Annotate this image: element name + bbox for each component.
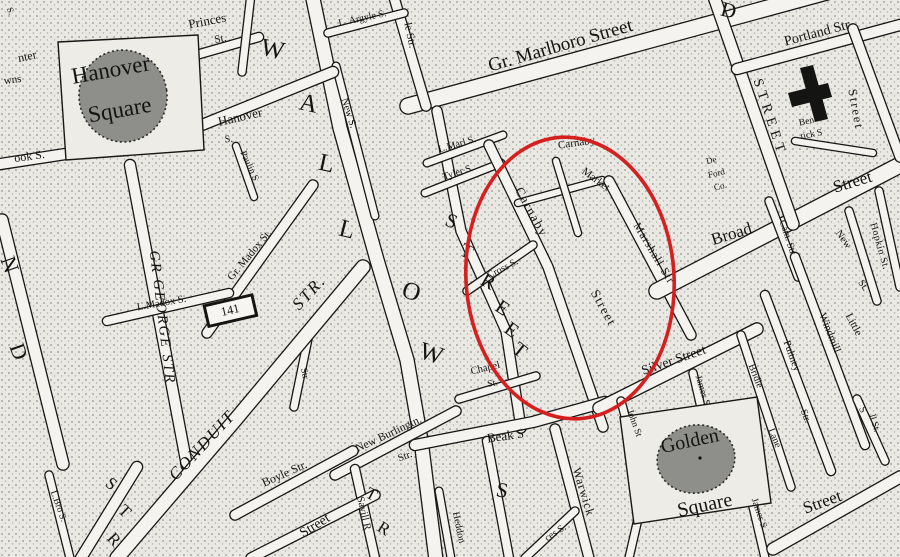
map-canvas: S.nterwnsHanoverSquarePrincesSt.HanoverS… xyxy=(0,0,900,557)
golden-square-center-dot xyxy=(698,456,701,459)
map-label-st-45: St. xyxy=(487,378,499,390)
map-screenshot: S.nterwnsHanoverSquarePrincesSt.HanoverS… xyxy=(0,0,900,557)
map-label-wns-2: wns xyxy=(3,73,22,87)
map-label-st-6: St. xyxy=(213,32,227,46)
map-label-s-8: S. xyxy=(224,134,233,146)
